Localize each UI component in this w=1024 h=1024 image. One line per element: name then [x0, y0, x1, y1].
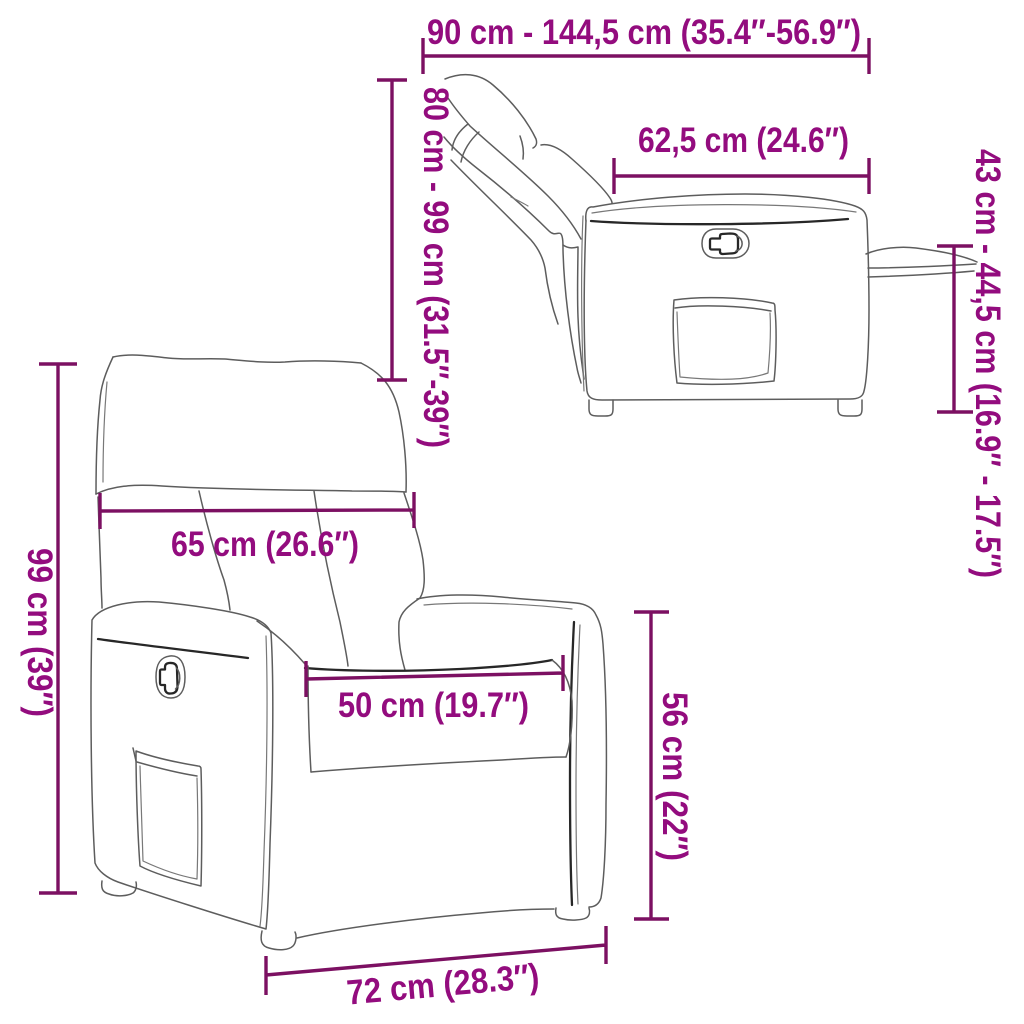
svg-text:90 cm - 144,5 cm (35.4″-56.9″): 90 cm - 144,5 cm (35.4″-56.9″)	[427, 13, 861, 52]
svg-text:56 cm (22″): 56 cm (22″)	[655, 692, 694, 861]
svg-text:65 cm (26.6″): 65 cm (26.6″)	[171, 525, 359, 564]
svg-text:99 cm (39″): 99 cm (39″)	[20, 548, 59, 717]
svg-text:43 cm - 44,5 cm (16.9″ - 17.5″: 43 cm - 44,5 cm (16.9″ - 17.5″)	[968, 149, 1007, 578]
svg-text:80 cm - 99 cm (31.5″-39″): 80 cm - 99 cm (31.5″-39″)	[416, 87, 455, 448]
svg-text:50 cm (19.7″): 50 cm (19.7″)	[338, 686, 529, 725]
svg-text:62,5 cm (24.6″): 62,5 cm (24.6″)	[638, 121, 849, 160]
